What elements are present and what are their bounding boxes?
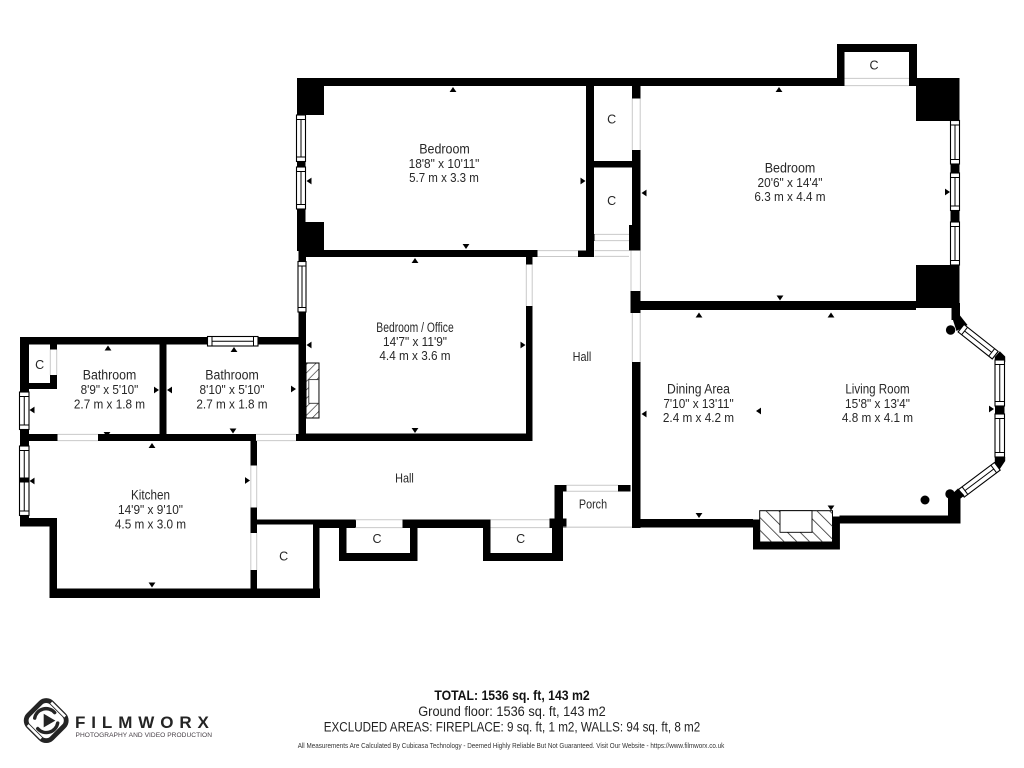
- svg-text:C: C: [869, 59, 878, 73]
- svg-text:C: C: [372, 532, 381, 546]
- svg-text:2.7 m x 1.8 m: 2.7 m x 1.8 m: [196, 398, 267, 412]
- svg-text:Living Room: Living Room: [845, 382, 909, 397]
- svg-text:4.5 m x 3.0 m: 4.5 m x 3.0 m: [115, 518, 186, 532]
- svg-text:Bathroom: Bathroom: [83, 368, 137, 383]
- svg-text:C: C: [607, 113, 616, 127]
- svg-text:Hall: Hall: [395, 470, 414, 485]
- svg-text:C: C: [35, 358, 44, 372]
- svg-text:20'6" x 14'4": 20'6" x 14'4": [758, 176, 823, 190]
- svg-text:5.7 m x 3.3 m: 5.7 m x 3.3 m: [409, 171, 479, 185]
- svg-text:C: C: [607, 194, 616, 208]
- svg-text:4.8 m x 4.1 m: 4.8 m x 4.1 m: [842, 411, 913, 425]
- svg-text:18'8" x 10'11": 18'8" x 10'11": [409, 157, 480, 171]
- svg-text:14'9" x 9'10": 14'9" x 9'10": [118, 503, 183, 517]
- svg-text:Bathroom: Bathroom: [205, 368, 259, 383]
- svg-text:8'9" x 5'10": 8'9" x 5'10": [81, 383, 139, 397]
- svg-text:8'10" x 5'10": 8'10" x 5'10": [200, 383, 265, 397]
- svg-text:Kitchen: Kitchen: [131, 488, 170, 503]
- svg-text:Dining Area: Dining Area: [667, 382, 730, 397]
- svg-text:FILMWORX: FILMWORX: [75, 713, 215, 732]
- svg-text:EXCLUDED AREAS: FIREPLACE: 9 s: EXCLUDED AREAS: FIREPLACE: 9 sq. ft, 1 m…: [324, 719, 701, 735]
- svg-text:15'8" x 13'4": 15'8" x 13'4": [845, 397, 910, 411]
- svg-text:PHOTOGRAPHY AND VIDEO PRODUCTI: PHOTOGRAPHY AND VIDEO PRODUCTION: [76, 732, 213, 739]
- svg-text:6.3 m x 4.4 m: 6.3 m x 4.4 m: [754, 190, 825, 204]
- svg-text:C: C: [279, 550, 288, 564]
- svg-text:Bedroom / Office: Bedroom / Office: [376, 320, 453, 335]
- svg-text:4.4 m x 3.6 m: 4.4 m x 3.6 m: [379, 349, 450, 363]
- svg-text:Bedroom: Bedroom: [419, 142, 470, 157]
- svg-text:14'7" x 11'9": 14'7" x 11'9": [383, 335, 447, 349]
- svg-text:7'10" x 13'11": 7'10" x 13'11": [663, 397, 733, 411]
- svg-text:2.7 m x 1.8 m: 2.7 m x 1.8 m: [74, 398, 145, 412]
- svg-text:Porch: Porch: [579, 496, 607, 511]
- svg-text:Ground floor: 1536 sq. ft, 143: Ground floor: 1536 sq. ft, 143 m2: [418, 704, 606, 720]
- svg-text:All Measurements Are Calculate: All Measurements Are Calculated By Cubic…: [298, 741, 725, 750]
- svg-text:TOTAL: 1536 sq. ft, 143 m2: TOTAL: 1536 sq. ft, 143 m2: [434, 688, 589, 704]
- svg-text:2.4 m x 4.2 m: 2.4 m x 4.2 m: [663, 411, 734, 425]
- svg-text:C: C: [516, 532, 525, 546]
- svg-text:Bedroom: Bedroom: [765, 161, 816, 176]
- svg-text:Hall: Hall: [573, 349, 592, 364]
